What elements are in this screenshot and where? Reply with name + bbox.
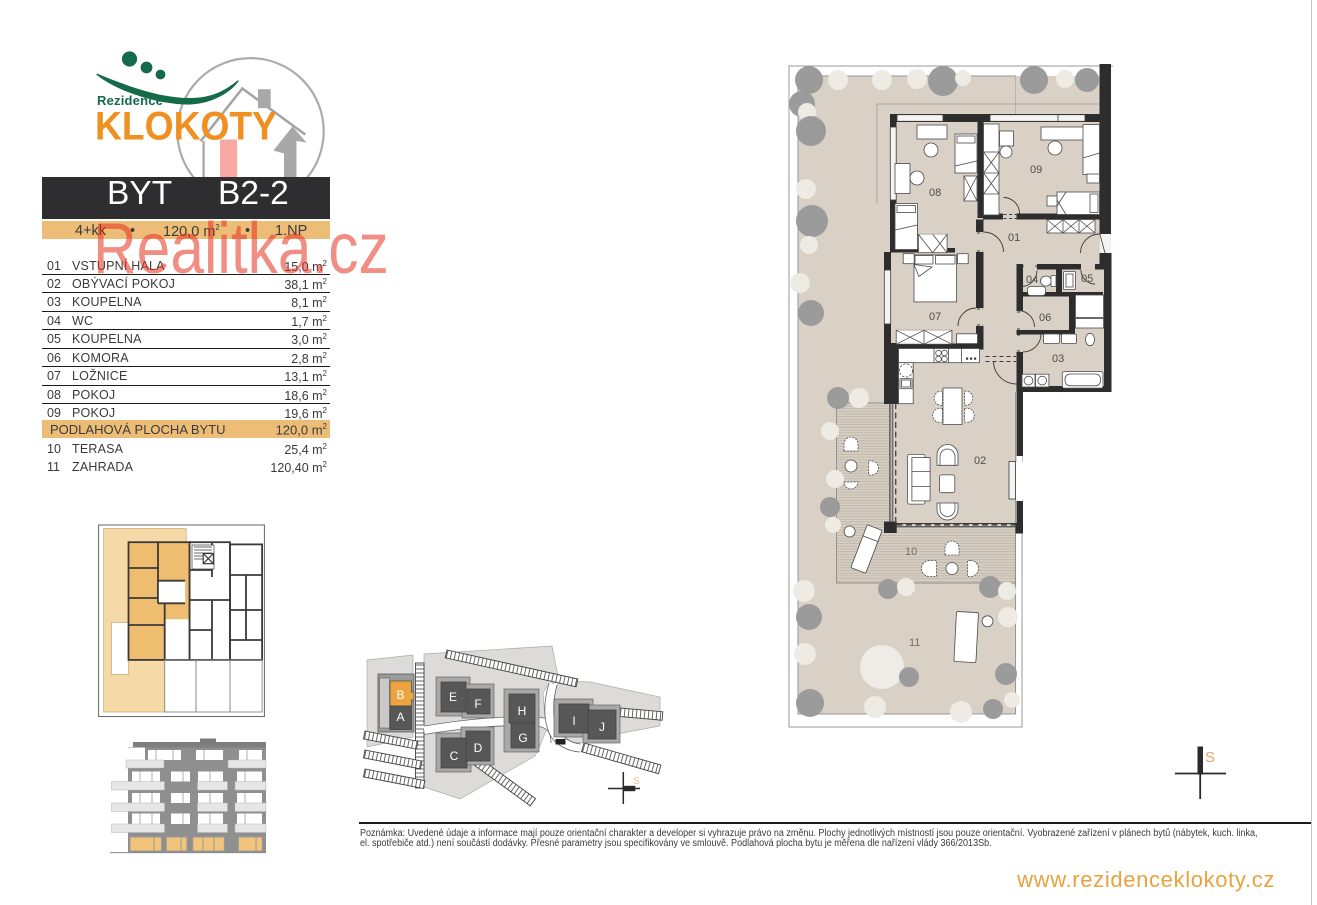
svg-text:E: E [449, 690, 457, 704]
svg-text:11: 11 [909, 637, 920, 649]
svg-text:I: I [572, 714, 575, 728]
svg-text:J: J [599, 720, 605, 734]
svg-text:09: 09 [1030, 164, 1042, 176]
svg-text:05: 05 [1081, 273, 1093, 285]
svg-text:01: 01 [1008, 232, 1020, 244]
svg-text:10: 10 [905, 546, 917, 558]
svg-text:02: 02 [974, 455, 986, 467]
svg-text:D: D [474, 741, 483, 755]
svg-text:G: G [518, 731, 527, 745]
svg-text:H: H [518, 704, 527, 718]
svg-text:04: 04 [1026, 274, 1038, 286]
svg-text:06: 06 [1039, 312, 1051, 324]
svg-text:A: A [396, 710, 404, 724]
svg-text:KLOKOTY: KLOKOTY [95, 105, 277, 149]
svg-text:S: S [633, 776, 640, 787]
svg-text:03: 03 [1052, 353, 1064, 365]
svg-text:08: 08 [929, 187, 941, 199]
svg-text:S: S [1205, 749, 1215, 766]
svg-text:B: B [396, 688, 404, 702]
svg-text:C: C [450, 749, 459, 763]
svg-text:07: 07 [929, 311, 941, 323]
svg-text:F: F [474, 697, 481, 711]
